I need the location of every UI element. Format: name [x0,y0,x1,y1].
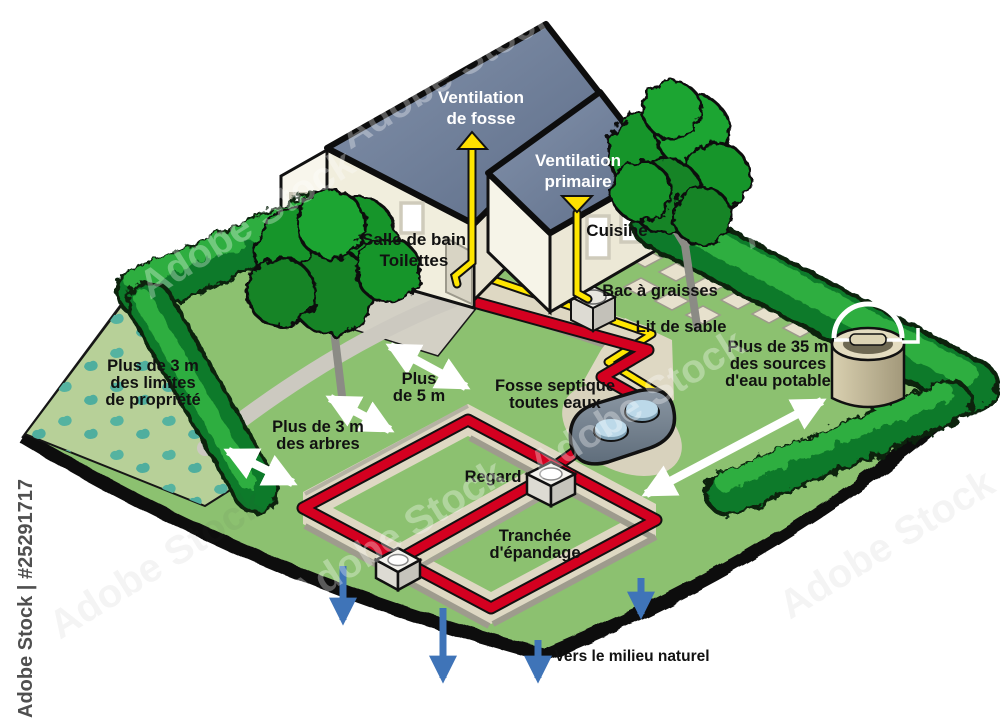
watermark-side-id: Adobe Stock | #25291717 [15,479,37,718]
label-limites-line2: des limites [110,374,195,392]
label-ventilation-fosse-line2: de fosse [447,109,516,128]
well-roller [850,334,886,345]
label-fosse-line1: Fosse septique [495,377,615,395]
label-5m-line1: Plus [402,370,437,388]
label-limites-line1: Plus de 3 m [107,357,199,375]
tree-left-canopy [247,258,315,326]
label-tranchee-line2: d'épandage [489,544,580,562]
label-tranchee-line1: Tranchée [499,527,571,545]
tree-right-canopy [673,187,731,245]
label-sources-line3: d'eau potable [725,372,831,390]
label-cuisine: Cuisine [586,221,647,240]
label-toilettes: Toilettes [380,251,449,270]
label-arbres-line1: Plus de 3 m [272,418,364,436]
label-5m-line2: de 5 m [393,387,445,405]
label-ventilation-primaire-line2: primaire [544,172,611,191]
diagram-canvas: Ventilation de fosse Ventilation primair… [0,0,1000,724]
tree-right-canopy [611,161,671,221]
label-ventilation-primaire-line1: Ventilation [535,151,621,170]
label-arbres-line2: des arbres [276,435,359,453]
label-milieu-naturel: Vers le milieu naturel [554,648,709,665]
tree-right-canopy [643,81,701,139]
window [401,203,423,233]
label-salle-de-bain: Salle de bain [362,230,466,249]
label-bac-a-graisses: Bac à graisses [602,282,718,300]
label-limites-line3: de propriété [105,391,200,409]
septic-system-diagram: Ventilation de fosse Ventilation primair… [0,0,1000,724]
